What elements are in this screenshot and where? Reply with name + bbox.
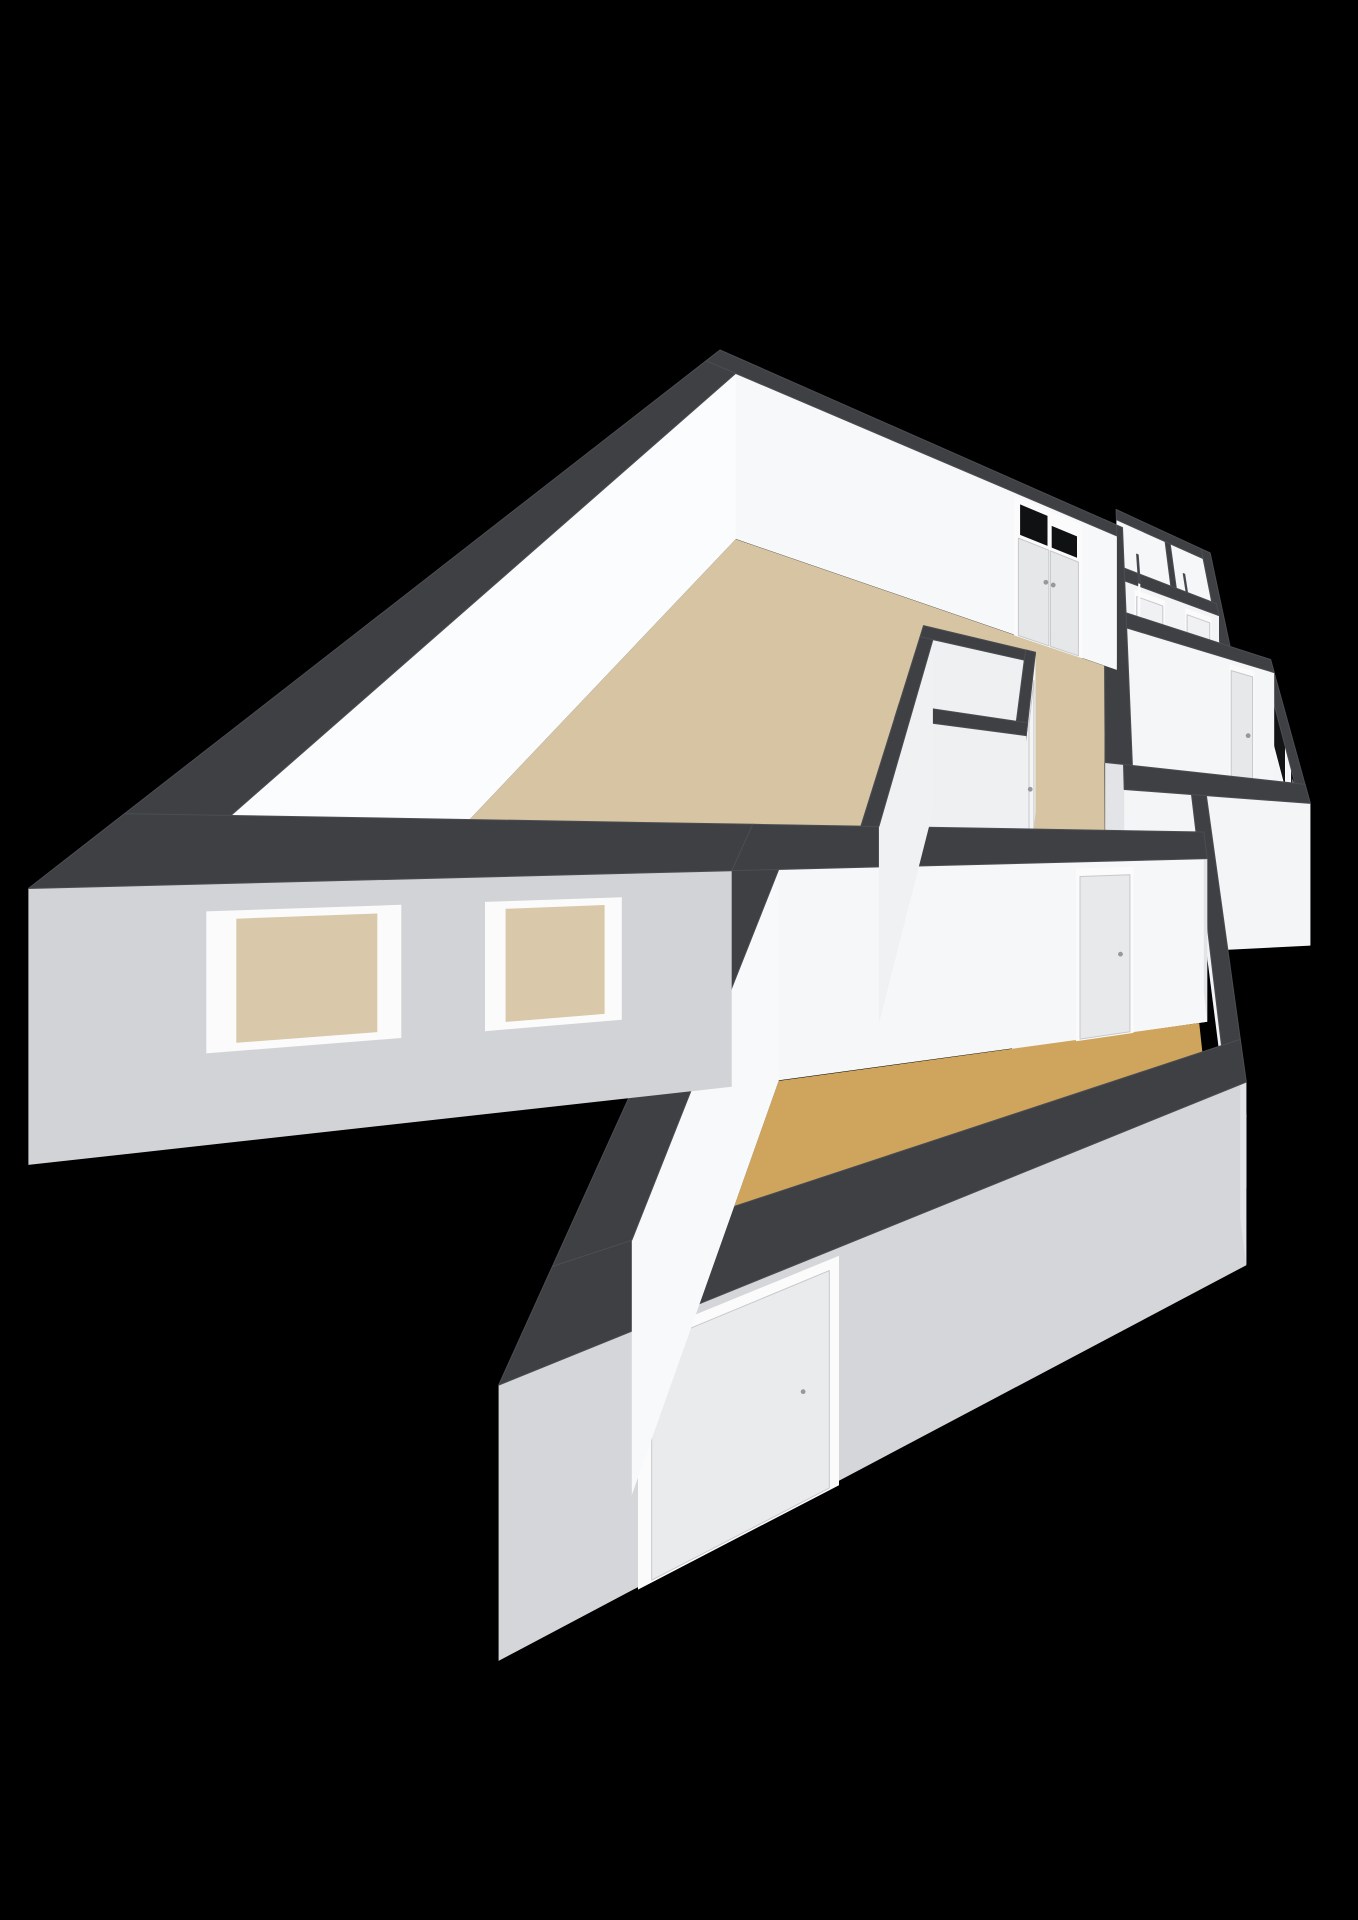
wall-bedroom-north-end-face-east [1204, 832, 1207, 1022]
entry-door-panel-right [1050, 551, 1078, 656]
wall-living-north-door-handle [1051, 583, 1056, 588]
wall-closet-east-door-handle [1028, 787, 1033, 792]
wall-living-north-door-handle [1043, 580, 1048, 585]
wall-bedroom-north-door-handle [1118, 952, 1123, 957]
wall-living-south-window-glass [236, 914, 377, 1043]
entry-door-panel-left [1018, 538, 1048, 646]
floorplan-3d-stage [0, 0, 1358, 1920]
floorplan-3d-render [0, 0, 1358, 1920]
wall-bedroom-south-door-handle [801, 1389, 806, 1394]
wall-bedroom-north-door-panel [1080, 875, 1130, 1039]
wall-bathroom-north-door-handle [1246, 733, 1251, 738]
wall-living-south-window-glass [506, 905, 605, 1022]
